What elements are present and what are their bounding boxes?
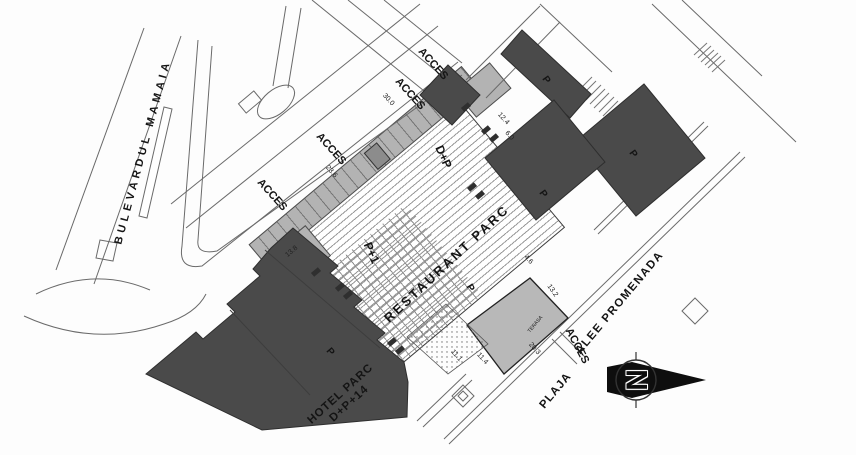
restaurant-regime-label: D+P [432, 143, 454, 170]
street-label-beach: PLAJA [537, 371, 574, 412]
north-letter: N [620, 369, 653, 391]
parking-label-4: P [324, 346, 337, 358]
site-plan: BULEVARDUL MAMAIA RESTAURANT PARC HOTEL … [0, 0, 856, 455]
dimension-label: 6.0 [503, 130, 515, 142]
dimension-label: 4.6 [522, 254, 534, 266]
parking-label-5: P [464, 282, 477, 293]
parking-label-1: P [540, 74, 553, 86]
labels-layer: BULEVARDUL MAMAIA RESTAURANT PARC HOTEL … [0, 0, 856, 455]
street-label-promenade: ALEE PROMENADA [573, 249, 666, 357]
parking-label-2: P [627, 148, 640, 160]
dimension-label: 13.2 [545, 283, 559, 299]
dimension-label: 13.8 [284, 245, 299, 260]
dimension-label: 20.3 [527, 341, 542, 356]
dimension-label: 11.4 [475, 352, 489, 367]
access-label-1: ACCES [416, 46, 451, 83]
hotel-name-label: HOTEL PARC D+P+14 [305, 362, 384, 437]
dimension-label: 12.4 [496, 111, 511, 126]
terrace-label: TERASA [527, 316, 544, 335]
dimension-label: 30.0 [381, 92, 396, 107]
access-label-3: ACCES [314, 131, 349, 168]
dimension-label: 23.6 [324, 164, 339, 179]
access-label-2: ACCES [393, 76, 428, 113]
restaurant-name-label: RESTAURANT PARC [382, 202, 513, 325]
restaurant-upper-regime-label: P+1 [361, 240, 382, 265]
parking-label-3: P [537, 188, 550, 200]
access-label-4: ACCES [255, 177, 290, 214]
street-label-boulevard: BULEVARDUL MAMAIA [112, 58, 173, 246]
dimension-label: 11.1 [449, 349, 463, 364]
